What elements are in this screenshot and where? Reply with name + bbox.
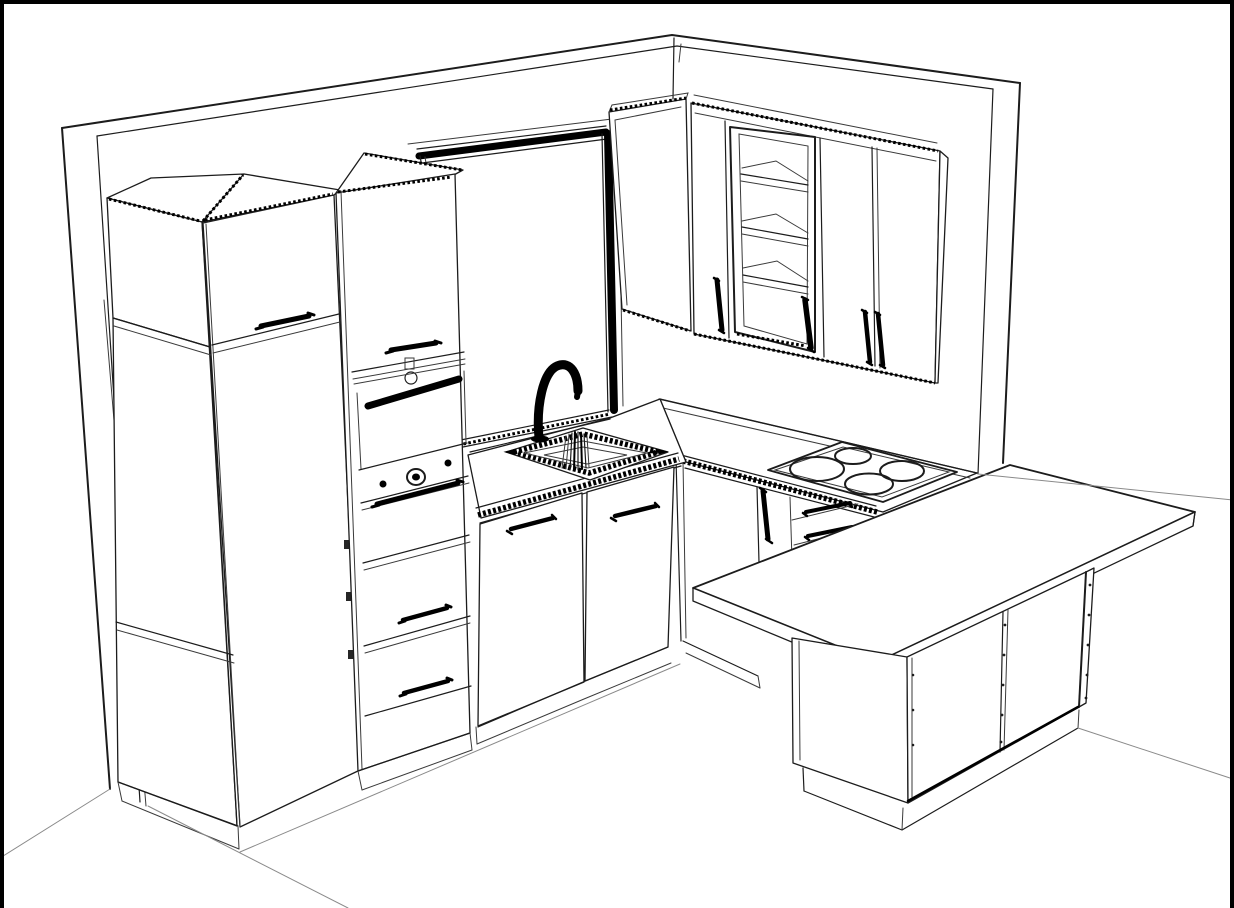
- island-side-panel: [792, 638, 908, 803]
- oven-tower: [336, 153, 472, 790]
- kitchen-drawing-canvas: [0, 0, 1234, 908]
- sink-door-right: [585, 467, 674, 681]
- control-dot: [380, 481, 387, 488]
- tall-cabinet-block: [107, 174, 360, 849]
- wall-cabinet-back: [609, 93, 691, 331]
- sink-door-left: [478, 493, 584, 726]
- kitchen-3d-render: [0, 0, 1234, 908]
- control-dot: [445, 460, 452, 467]
- base-door-handle-vertical: [760, 488, 772, 543]
- wall-cabinets-right: [691, 95, 948, 383]
